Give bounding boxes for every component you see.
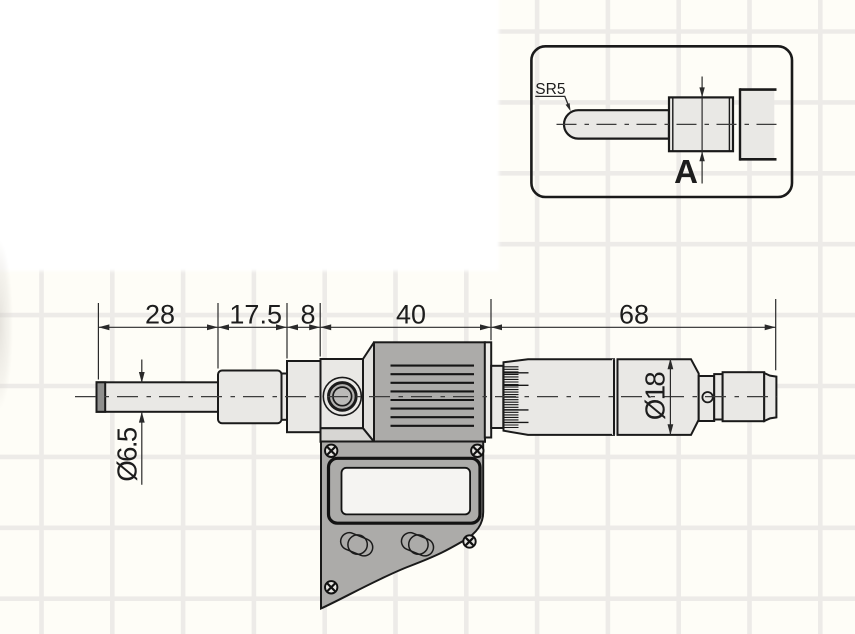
svg-text:68: 68	[619, 299, 649, 329]
svg-text:Ø18: Ø18	[640, 372, 671, 420]
svg-text:A: A	[674, 153, 698, 190]
svg-text:8: 8	[300, 299, 315, 329]
svg-text:SR5: SR5	[535, 81, 565, 98]
svg-text:Ø6.5: Ø6.5	[112, 427, 143, 482]
svg-text:28: 28	[145, 299, 175, 329]
svg-text:17.5: 17.5	[229, 299, 282, 329]
svg-text:40: 40	[396, 299, 426, 329]
